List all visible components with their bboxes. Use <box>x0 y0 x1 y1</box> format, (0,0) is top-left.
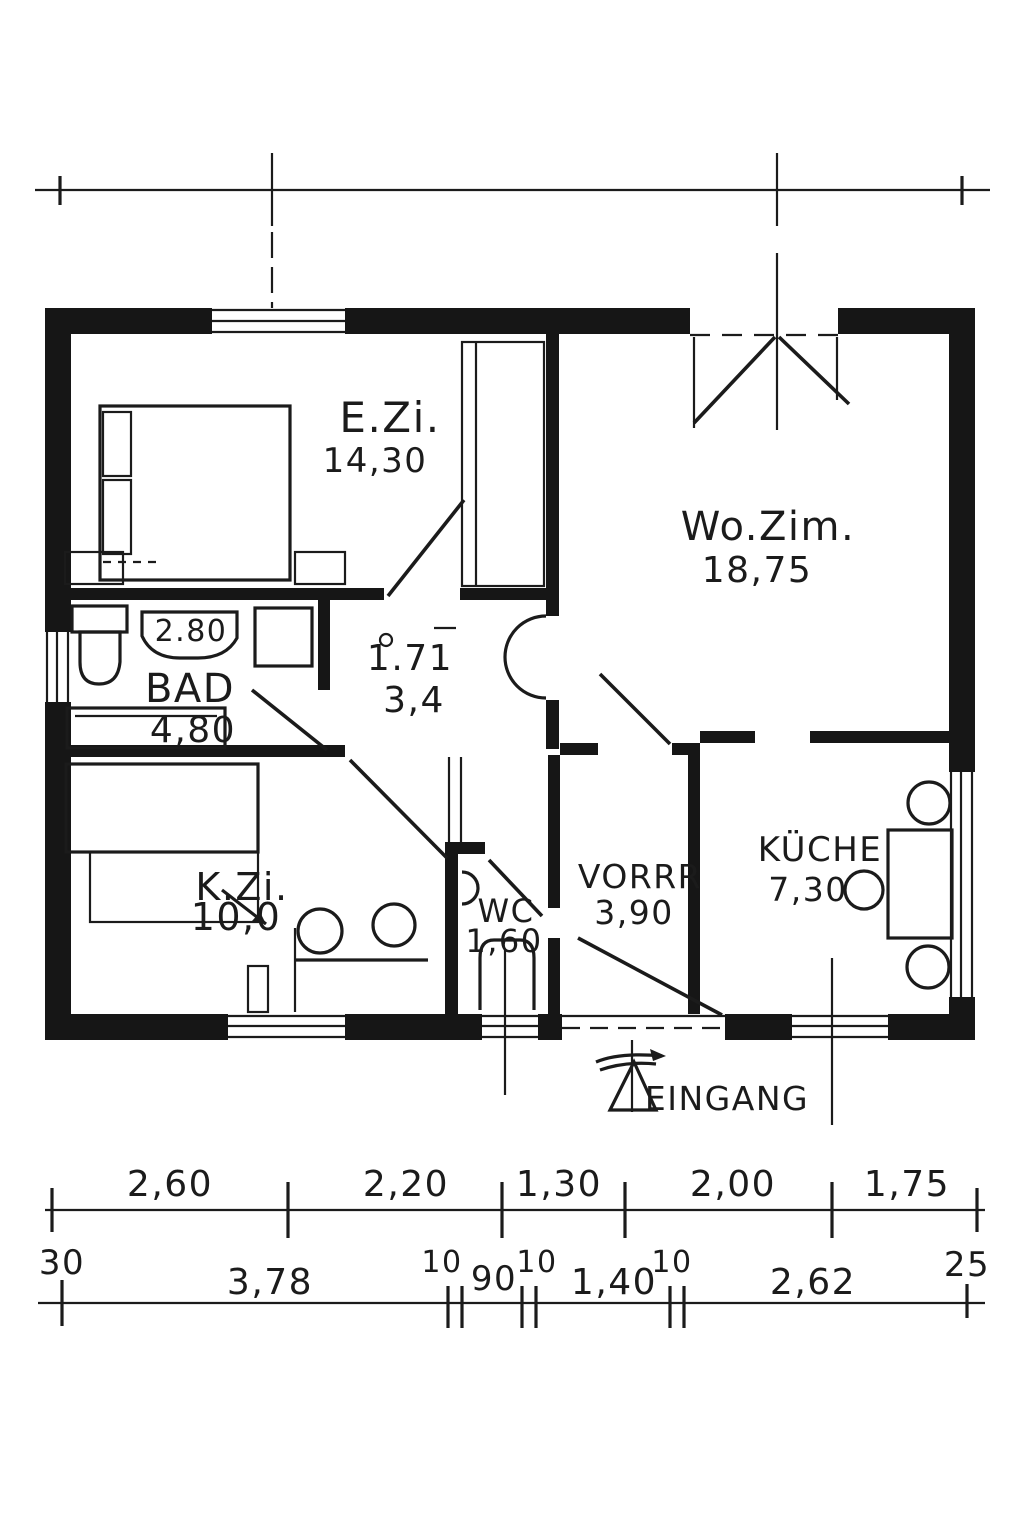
dim-9: 90 <box>471 1259 517 1299</box>
dim-7: 3,78 <box>227 1262 313 1303</box>
living-label: Wo.Zim. <box>681 504 855 550</box>
chair-icon <box>907 946 949 988</box>
living-door-leaf <box>600 674 670 744</box>
pantry-area: 3,90 <box>594 893 673 932</box>
pantry-label: VORRR <box>578 857 702 896</box>
dim-14: 25 <box>944 1245 990 1285</box>
bedroom-furniture <box>65 342 544 586</box>
entrance-door-leaf <box>578 938 722 1015</box>
floorplan-canvas: E.Zi. 14,30 Wo.Zim. 18,75 2.80 BAD 4,80 … <box>0 0 1024 1536</box>
bedroom-door-leaf <box>388 500 464 596</box>
dim-11: 1,40 <box>571 1262 657 1303</box>
bedroom-area: 14,30 <box>323 441 428 481</box>
dimension-chain-walls: 30 3,78 10 90 10 1,40 10 2,62 25 <box>38 1243 990 1328</box>
bedroom-label: E.Zi. <box>339 393 440 442</box>
kitchen-furniture <box>845 782 952 988</box>
dimension-chain-axes: 2,60 2,20 1,30 2,00 1,75 <box>45 1164 985 1238</box>
chair-icon <box>298 909 342 953</box>
dim-5: 1,75 <box>864 1164 950 1205</box>
top-dimension-line <box>35 153 990 430</box>
toilet-icon <box>80 632 120 684</box>
wc-area: 1,60 <box>465 922 542 960</box>
hob-icon <box>845 871 883 909</box>
entrance-label: EINGANG <box>645 1079 809 1118</box>
washbasin-dim: 2.80 <box>155 614 228 649</box>
chair-icon <box>373 904 415 946</box>
bath-area: 4,80 <box>150 710 236 751</box>
french-door <box>690 335 849 428</box>
hall-area: 3,4 <box>383 680 445 721</box>
kids-area: 10,0 <box>191 895 282 939</box>
hall-label: 1.71 <box>367 638 453 679</box>
dim-3: 1,30 <box>516 1164 602 1205</box>
kids-door-leaf <box>350 760 447 858</box>
dim-1: 2,60 <box>127 1164 213 1205</box>
dim-2: 2,20 <box>363 1164 449 1205</box>
kitchen-label: KÜCHE <box>758 829 883 870</box>
bath-label: BAD <box>145 666 235 712</box>
kitchen-area: 7,30 <box>768 870 847 909</box>
dim-6: 30 <box>39 1243 85 1283</box>
dim-12: 10 <box>651 1245 692 1280</box>
dim-4: 2,00 <box>690 1164 776 1205</box>
dim-8: 10 <box>421 1245 462 1280</box>
chair-icon <box>908 782 950 824</box>
dim-13: 2,62 <box>770 1262 856 1303</box>
entrance-arrow-icon <box>650 1049 666 1061</box>
floorplan-sheet: E.Zi. 14,30 Wo.Zim. 18,75 2.80 BAD 4,80 … <box>0 0 1024 1536</box>
hall-living-arch <box>505 616 546 698</box>
living-area: 18,75 <box>702 550 813 591</box>
bath-door-leaf <box>252 690 327 750</box>
dim-10: 10 <box>516 1245 557 1280</box>
corner-sink-icon <box>462 872 478 904</box>
